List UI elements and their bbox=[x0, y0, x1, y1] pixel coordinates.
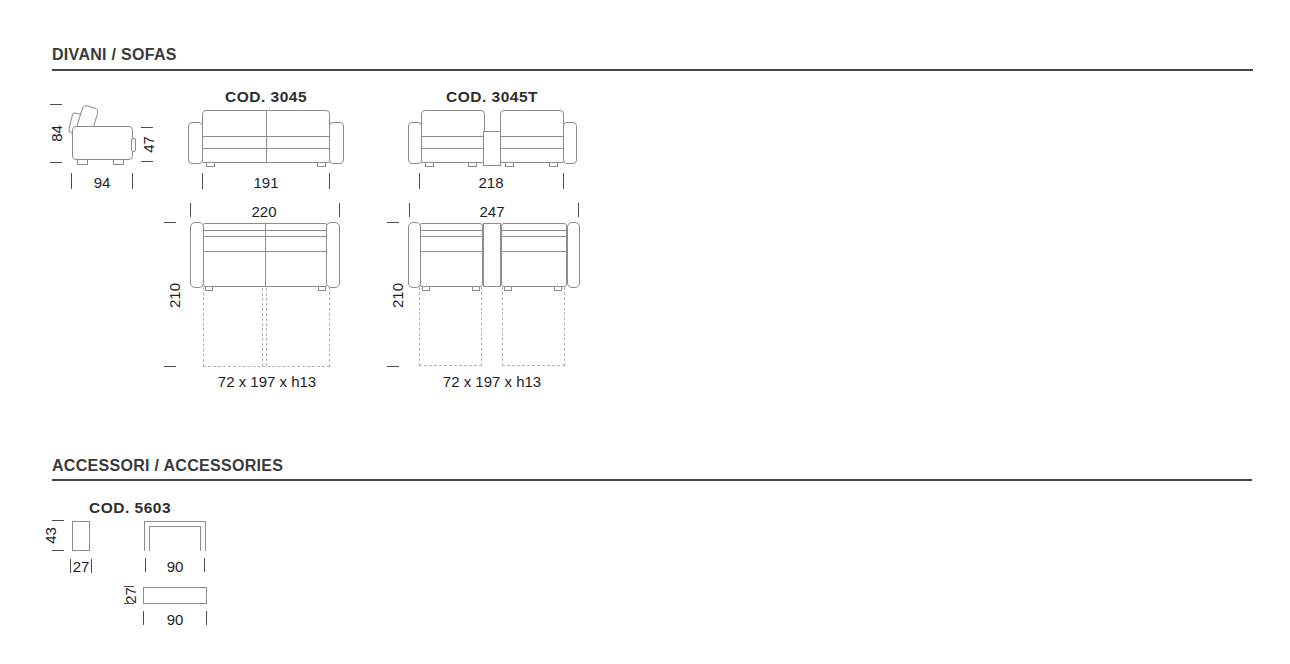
section-title-accessories: ACCESSORI / ACCESSORIES bbox=[52, 457, 283, 475]
dim-model-b-open-depth: 210 bbox=[388, 265, 408, 325]
dim-tick bbox=[387, 366, 399, 367]
dim-accessory-top-depth: 27 bbox=[120, 565, 140, 625]
dim-tick bbox=[419, 173, 420, 189]
dim-tick bbox=[71, 173, 72, 189]
bed-fold-line bbox=[262, 288, 263, 366]
dim-tick bbox=[578, 203, 579, 217]
front-seam bbox=[422, 148, 484, 149]
model-a-bed-size: 72 x 197 x h13 bbox=[218, 373, 316, 390]
dim-tick bbox=[339, 203, 340, 217]
dim-side-height: 84 bbox=[46, 103, 66, 163]
front-seam bbox=[501, 136, 563, 137]
top-armrest-right bbox=[326, 222, 340, 288]
top-armrest-left bbox=[190, 222, 204, 288]
dim-model-b-top-width: 247 bbox=[479, 203, 504, 220]
section-rule-accessories bbox=[52, 479, 1252, 481]
front-armrest-right bbox=[563, 122, 577, 164]
dim-accessory-front-width: 90 bbox=[167, 558, 184, 575]
dim-model-a-open-depth: 210 bbox=[165, 265, 185, 325]
dim-tick bbox=[164, 222, 176, 223]
front-seam bbox=[422, 136, 484, 137]
model-b-code: COD. 3045T bbox=[446, 88, 538, 106]
top-backrest-line bbox=[420, 236, 482, 237]
top-seat-line bbox=[420, 251, 482, 252]
accessory-top-view bbox=[143, 587, 207, 604]
accessory-front-inner bbox=[149, 526, 201, 551]
top-center-seam bbox=[265, 224, 266, 286]
section-title-sofas: DIVANI / SOFAS bbox=[52, 46, 177, 64]
dim-tick bbox=[563, 173, 564, 189]
top-seat-line bbox=[502, 251, 566, 252]
model-b-bed-size: 72 x 197 x h13 bbox=[443, 373, 541, 390]
dim-side-depth: 94 bbox=[94, 174, 111, 191]
model-a-code: COD. 3045 bbox=[225, 88, 307, 106]
section-rule-sofas bbox=[52, 69, 1253, 71]
dim-tick bbox=[409, 203, 410, 217]
top-body-left bbox=[419, 223, 483, 287]
top-backrest-line bbox=[502, 236, 566, 237]
top-backrest-line bbox=[502, 230, 566, 231]
bed-outline-dashed-left bbox=[419, 287, 482, 366]
front-seam bbox=[501, 148, 563, 149]
front-center-tray bbox=[483, 131, 501, 166]
top-armrest-right bbox=[567, 222, 580, 288]
front-center-seam bbox=[266, 111, 267, 162]
dim-model-a-top-width: 220 bbox=[251, 203, 276, 220]
dim-tick bbox=[204, 558, 205, 572]
top-armrest-left bbox=[408, 222, 421, 288]
side-foot-left bbox=[77, 159, 88, 165]
dim-tick bbox=[202, 173, 203, 189]
dim-model-a-front-width: 191 bbox=[253, 174, 278, 191]
dim-tick bbox=[132, 173, 133, 189]
dim-accessory-top-width: 90 bbox=[167, 611, 184, 628]
top-body-right bbox=[501, 223, 567, 287]
dim-accessory-height: 43 bbox=[40, 505, 60, 565]
dim-tick bbox=[206, 611, 207, 625]
front-armrest-right bbox=[329, 122, 344, 164]
dim-tick bbox=[91, 559, 92, 573]
dim-tick bbox=[143, 611, 144, 625]
dim-tick bbox=[145, 558, 146, 572]
front-armrest-left bbox=[408, 122, 422, 164]
dim-tick bbox=[164, 366, 176, 367]
dim-tick bbox=[329, 173, 330, 189]
spec-sheet: DIVANI / SOFAS 84 47 94 COD. 3045 191 CO… bbox=[0, 0, 1290, 664]
front-armrest-left bbox=[188, 122, 203, 164]
side-handle bbox=[131, 138, 136, 152]
bed-fold-line bbox=[266, 288, 267, 366]
dim-side-seat-height: 47 bbox=[138, 114, 158, 174]
top-center-tray bbox=[483, 223, 501, 287]
dim-tick bbox=[387, 222, 399, 223]
dim-tick bbox=[190, 203, 191, 217]
accessory-side-view bbox=[72, 521, 90, 551]
dim-model-b-front-width: 218 bbox=[478, 174, 503, 191]
dim-accessory-side-width: 27 bbox=[73, 558, 90, 575]
top-backrest-line bbox=[420, 230, 482, 231]
side-foot-right bbox=[113, 159, 124, 165]
accessory-code: COD. 5603 bbox=[89, 499, 171, 517]
dim-tick bbox=[70, 559, 71, 573]
side-body bbox=[72, 126, 133, 160]
bed-outline-dashed-right bbox=[502, 287, 565, 366]
